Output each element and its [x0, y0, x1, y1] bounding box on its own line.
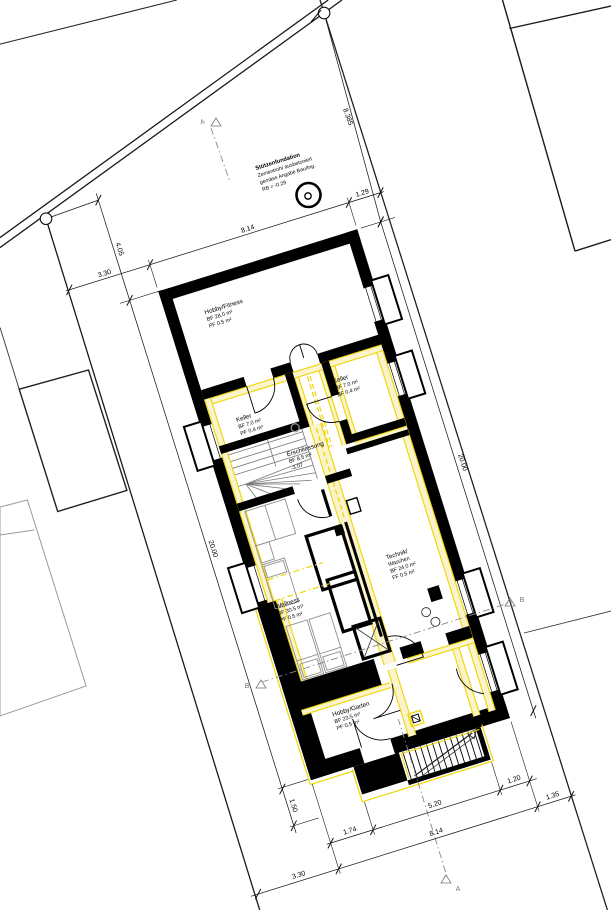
- svg-text:B: B: [245, 683, 250, 690]
- svg-text:B: B: [520, 597, 525, 604]
- svg-text:A: A: [456, 886, 461, 893]
